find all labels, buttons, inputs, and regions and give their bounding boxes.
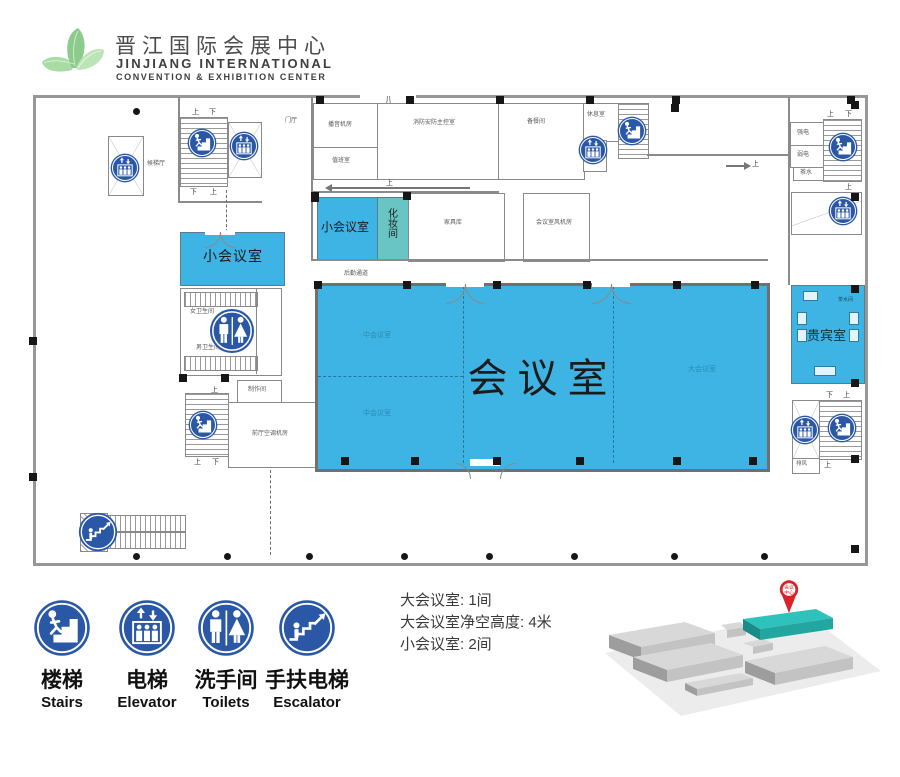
- dir-up: 上: [824, 460, 831, 470]
- dir-down: 下: [190, 187, 197, 197]
- stairs-icon: [33, 599, 91, 657]
- label-ac: 前厅空调机房: [252, 431, 288, 438]
- elevator-icon: [790, 415, 820, 445]
- dir-down: 下: [845, 109, 852, 119]
- door-gap: [470, 459, 500, 466]
- label-logistics: 后勤通道: [344, 271, 368, 278]
- dir-up: 上: [843, 390, 850, 400]
- label-entrance: 门厅: [285, 118, 297, 125]
- vip-furniture: [814, 366, 836, 376]
- label-pantry: 备餐间: [527, 119, 545, 126]
- dir-up: 上: [210, 187, 217, 197]
- vip-furniture: [849, 312, 859, 325]
- dir-down: 下: [209, 107, 216, 117]
- stairs-icon: [617, 116, 647, 146]
- dir-up: 上: [827, 109, 834, 119]
- elevator-icon: [578, 135, 608, 165]
- room-furniture-store: [408, 193, 505, 262]
- label-tea: 茶水: [800, 170, 812, 177]
- building-minimap: 会议 中心: [593, 573, 883, 718]
- label-lift-lobby: 候梯厅: [147, 161, 165, 168]
- stairs-icon: [187, 128, 217, 158]
- legend-escalator-en: Escalator: [242, 694, 372, 711]
- toilet-stalls: [184, 356, 258, 371]
- corridor-arrowhead: [325, 184, 332, 192]
- label-fire-control: 消防安防主控室: [413, 120, 455, 127]
- vip-furniture: [803, 291, 818, 301]
- dashed-passage: [226, 190, 227, 232]
- label-mid-meeting-bottom: 中会议室: [363, 408, 391, 418]
- label-broadcast: 播音机房: [328, 122, 352, 129]
- elevator-icon: [118, 599, 176, 657]
- door-arrowhead: [744, 162, 751, 170]
- pin-label-line2: 中心: [784, 589, 794, 596]
- label-strong-power: 强电: [797, 130, 809, 137]
- door-arrow: [726, 165, 744, 167]
- page: 晋江国际会展中心 JINJIANG INTERNATIONAL CONVENTI…: [0, 0, 900, 777]
- dir-up: 上: [192, 107, 199, 117]
- legend-escalator-zh: 手扶电梯: [242, 664, 372, 694]
- dir-up: 上: [194, 457, 201, 467]
- stat-line-3: 小会议室: 2间: [400, 634, 552, 656]
- room-stats: 大会议室: 1间 大会议室净空高度: 4米 小会议室: 2间: [400, 590, 552, 656]
- elevator-icon: [110, 153, 140, 183]
- room-pantry: [498, 103, 585, 180]
- room-fan-room: [523, 193, 590, 262]
- dashed-boundary: [270, 470, 271, 555]
- column-dots: [0, 0, 7, 7]
- label-mid-meeting-top: 中会议室: [363, 330, 391, 340]
- label-small-meeting-top: 小会议室: [321, 221, 369, 235]
- toilets-icon: [197, 599, 255, 657]
- escalator-icon: [278, 599, 336, 657]
- label-lounge: 休息室: [587, 112, 605, 119]
- dir-up: 上: [386, 178, 393, 188]
- stairs-icon: [828, 132, 858, 162]
- label-small-meeting-left: 小会议室: [203, 249, 263, 265]
- label-dressing: 化妆间: [385, 208, 397, 238]
- dir-up: 上: [211, 385, 218, 395]
- toilet-stalls: [184, 292, 258, 307]
- stairs-icon: [188, 410, 218, 440]
- vip-furniture: [849, 329, 859, 342]
- label-exhaust: 排风: [796, 461, 807, 467]
- elevator-icon: [828, 196, 858, 226]
- dir-down: 下: [212, 457, 219, 467]
- dir-up: 上: [752, 159, 759, 169]
- label-workshop: 制作间: [248, 387, 266, 394]
- vip-furniture: [797, 312, 807, 325]
- corridor-arrow: [332, 187, 470, 189]
- wall: [178, 201, 262, 203]
- room-fire-control: [377, 103, 500, 180]
- wall: [256, 288, 257, 374]
- label-vip-tea-room: 茶水间: [838, 298, 853, 304]
- escalator-icon: [78, 512, 118, 552]
- room-main-hall: 中会议室 中会议室 大会议室 会议室: [315, 283, 770, 472]
- stat-line-2: 大会议室净空高度: 4米: [400, 612, 552, 634]
- label-fan-room: 会议室风机房: [536, 220, 572, 227]
- label-furniture-store: 家具库: [444, 220, 462, 227]
- stat-line-1: 大会议室: 1间: [400, 590, 552, 612]
- label-vip: 贵宾室: [807, 330, 846, 345]
- label-duty: 值班室: [332, 158, 350, 165]
- toilets-icon: [209, 308, 255, 354]
- stairs-icon: [827, 413, 857, 443]
- wall: [313, 259, 768, 261]
- label-weak-power: 弱电: [797, 152, 809, 159]
- vip-furniture: [797, 329, 807, 342]
- wall: [647, 154, 790, 156]
- dir-up: 上: [845, 182, 852, 192]
- location-pin-icon: 会议 中心: [780, 580, 798, 613]
- dir-down: 下: [826, 390, 833, 400]
- pin-label-line1: 会议: [784, 584, 794, 591]
- label-main-hall: 会议室: [318, 346, 767, 404]
- elevator-icon: [229, 131, 259, 161]
